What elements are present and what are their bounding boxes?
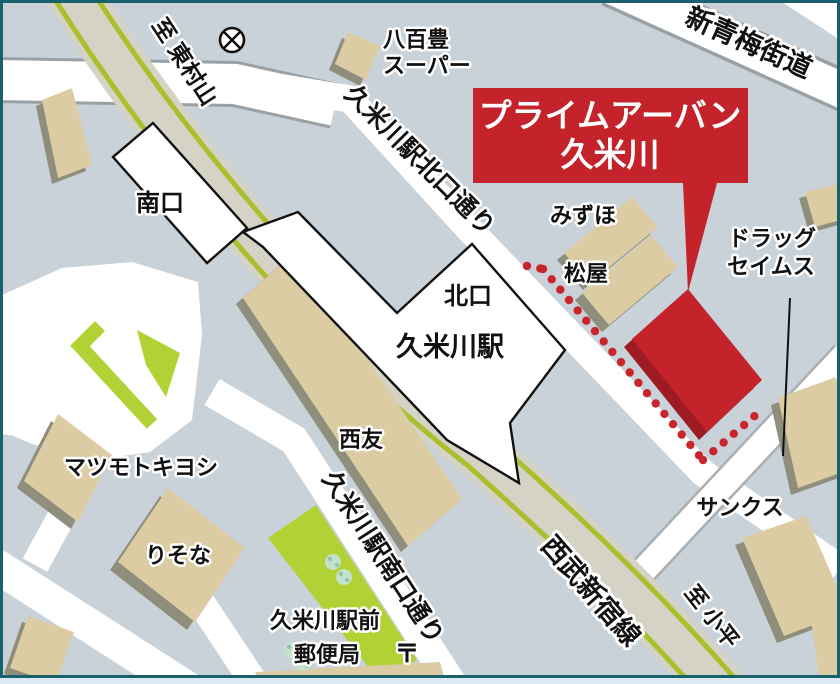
callout-pointer xyxy=(683,183,717,292)
building-drug-seims xyxy=(771,377,837,495)
route-dot xyxy=(634,379,642,387)
label-station-name: 久米川駅 xyxy=(396,332,504,362)
route-dot xyxy=(608,348,616,356)
label-drug-seims-2: セイムス xyxy=(727,254,815,279)
callout-title-line2: 久米川 xyxy=(561,136,660,173)
label-matsuya: 松屋 xyxy=(564,261,608,286)
label-matsumotokiyoshi: マツモトキヨシ xyxy=(64,455,218,480)
police-station-icon xyxy=(220,28,244,52)
route-dot xyxy=(699,456,707,464)
label-yaohotoyo-1: 八百豊 xyxy=(383,27,449,52)
route-dot xyxy=(719,438,727,446)
route-dot xyxy=(548,275,556,283)
postal-mark-icon: 〒 xyxy=(394,640,419,668)
label-north-exit: 北口 xyxy=(444,283,492,310)
risona-side-road xyxy=(198,598,255,675)
route-dot xyxy=(523,262,531,270)
route-dot xyxy=(574,306,582,314)
label-south-exit: 南口 xyxy=(136,190,184,217)
route-dot xyxy=(617,358,625,366)
route-dot xyxy=(740,421,748,429)
kumegawa-map: 至 東村山 新青梅街道 久米川駅北口通り 久米川駅南口通り 西武新宿線 至 小平… xyxy=(3,3,837,675)
route-dot xyxy=(626,368,634,376)
route-dot xyxy=(582,317,590,325)
tree-icon xyxy=(325,554,341,570)
route-dot xyxy=(730,430,738,438)
label-drug-seims-1: ドラッグ xyxy=(728,226,816,251)
corner-block xyxy=(779,3,837,40)
label-mizuho: みずほ xyxy=(550,203,616,228)
route-dot xyxy=(660,410,668,418)
map-frame: 至 東村山 新青梅街道 久米川駅北口通り 久米川駅南口通り 西武新宿線 至 小平… xyxy=(0,0,840,678)
label-sunkus: サンクス xyxy=(696,495,783,520)
route-dot xyxy=(591,327,599,335)
label-yaohotoyo-2: スーパー xyxy=(383,53,471,78)
label-post-office-2: 郵便局 xyxy=(294,642,360,667)
route-dot xyxy=(652,399,660,407)
label-risona: りそな xyxy=(145,543,211,568)
route-dot xyxy=(686,441,694,449)
tree-icon xyxy=(336,569,352,585)
route-dot xyxy=(669,420,677,428)
route-dot xyxy=(565,296,573,304)
callout-title-line1: プライムアーバン xyxy=(479,97,742,134)
route-dot xyxy=(556,286,564,294)
route-dot xyxy=(539,265,547,273)
route-dot xyxy=(750,412,758,420)
map-canvas: 至 東村山 新青梅街道 久米川駅北口通り 久米川駅南口通り 西武新宿線 至 小平… xyxy=(0,0,840,684)
route-dot xyxy=(678,430,686,438)
route-dot xyxy=(600,337,608,345)
route-dot xyxy=(643,389,651,397)
label-post-office-1: 久米川駅前 xyxy=(270,608,380,633)
building-yaohotoyo xyxy=(329,32,380,86)
route-dot xyxy=(709,447,717,455)
label-seiyu: 西友 xyxy=(339,427,383,452)
